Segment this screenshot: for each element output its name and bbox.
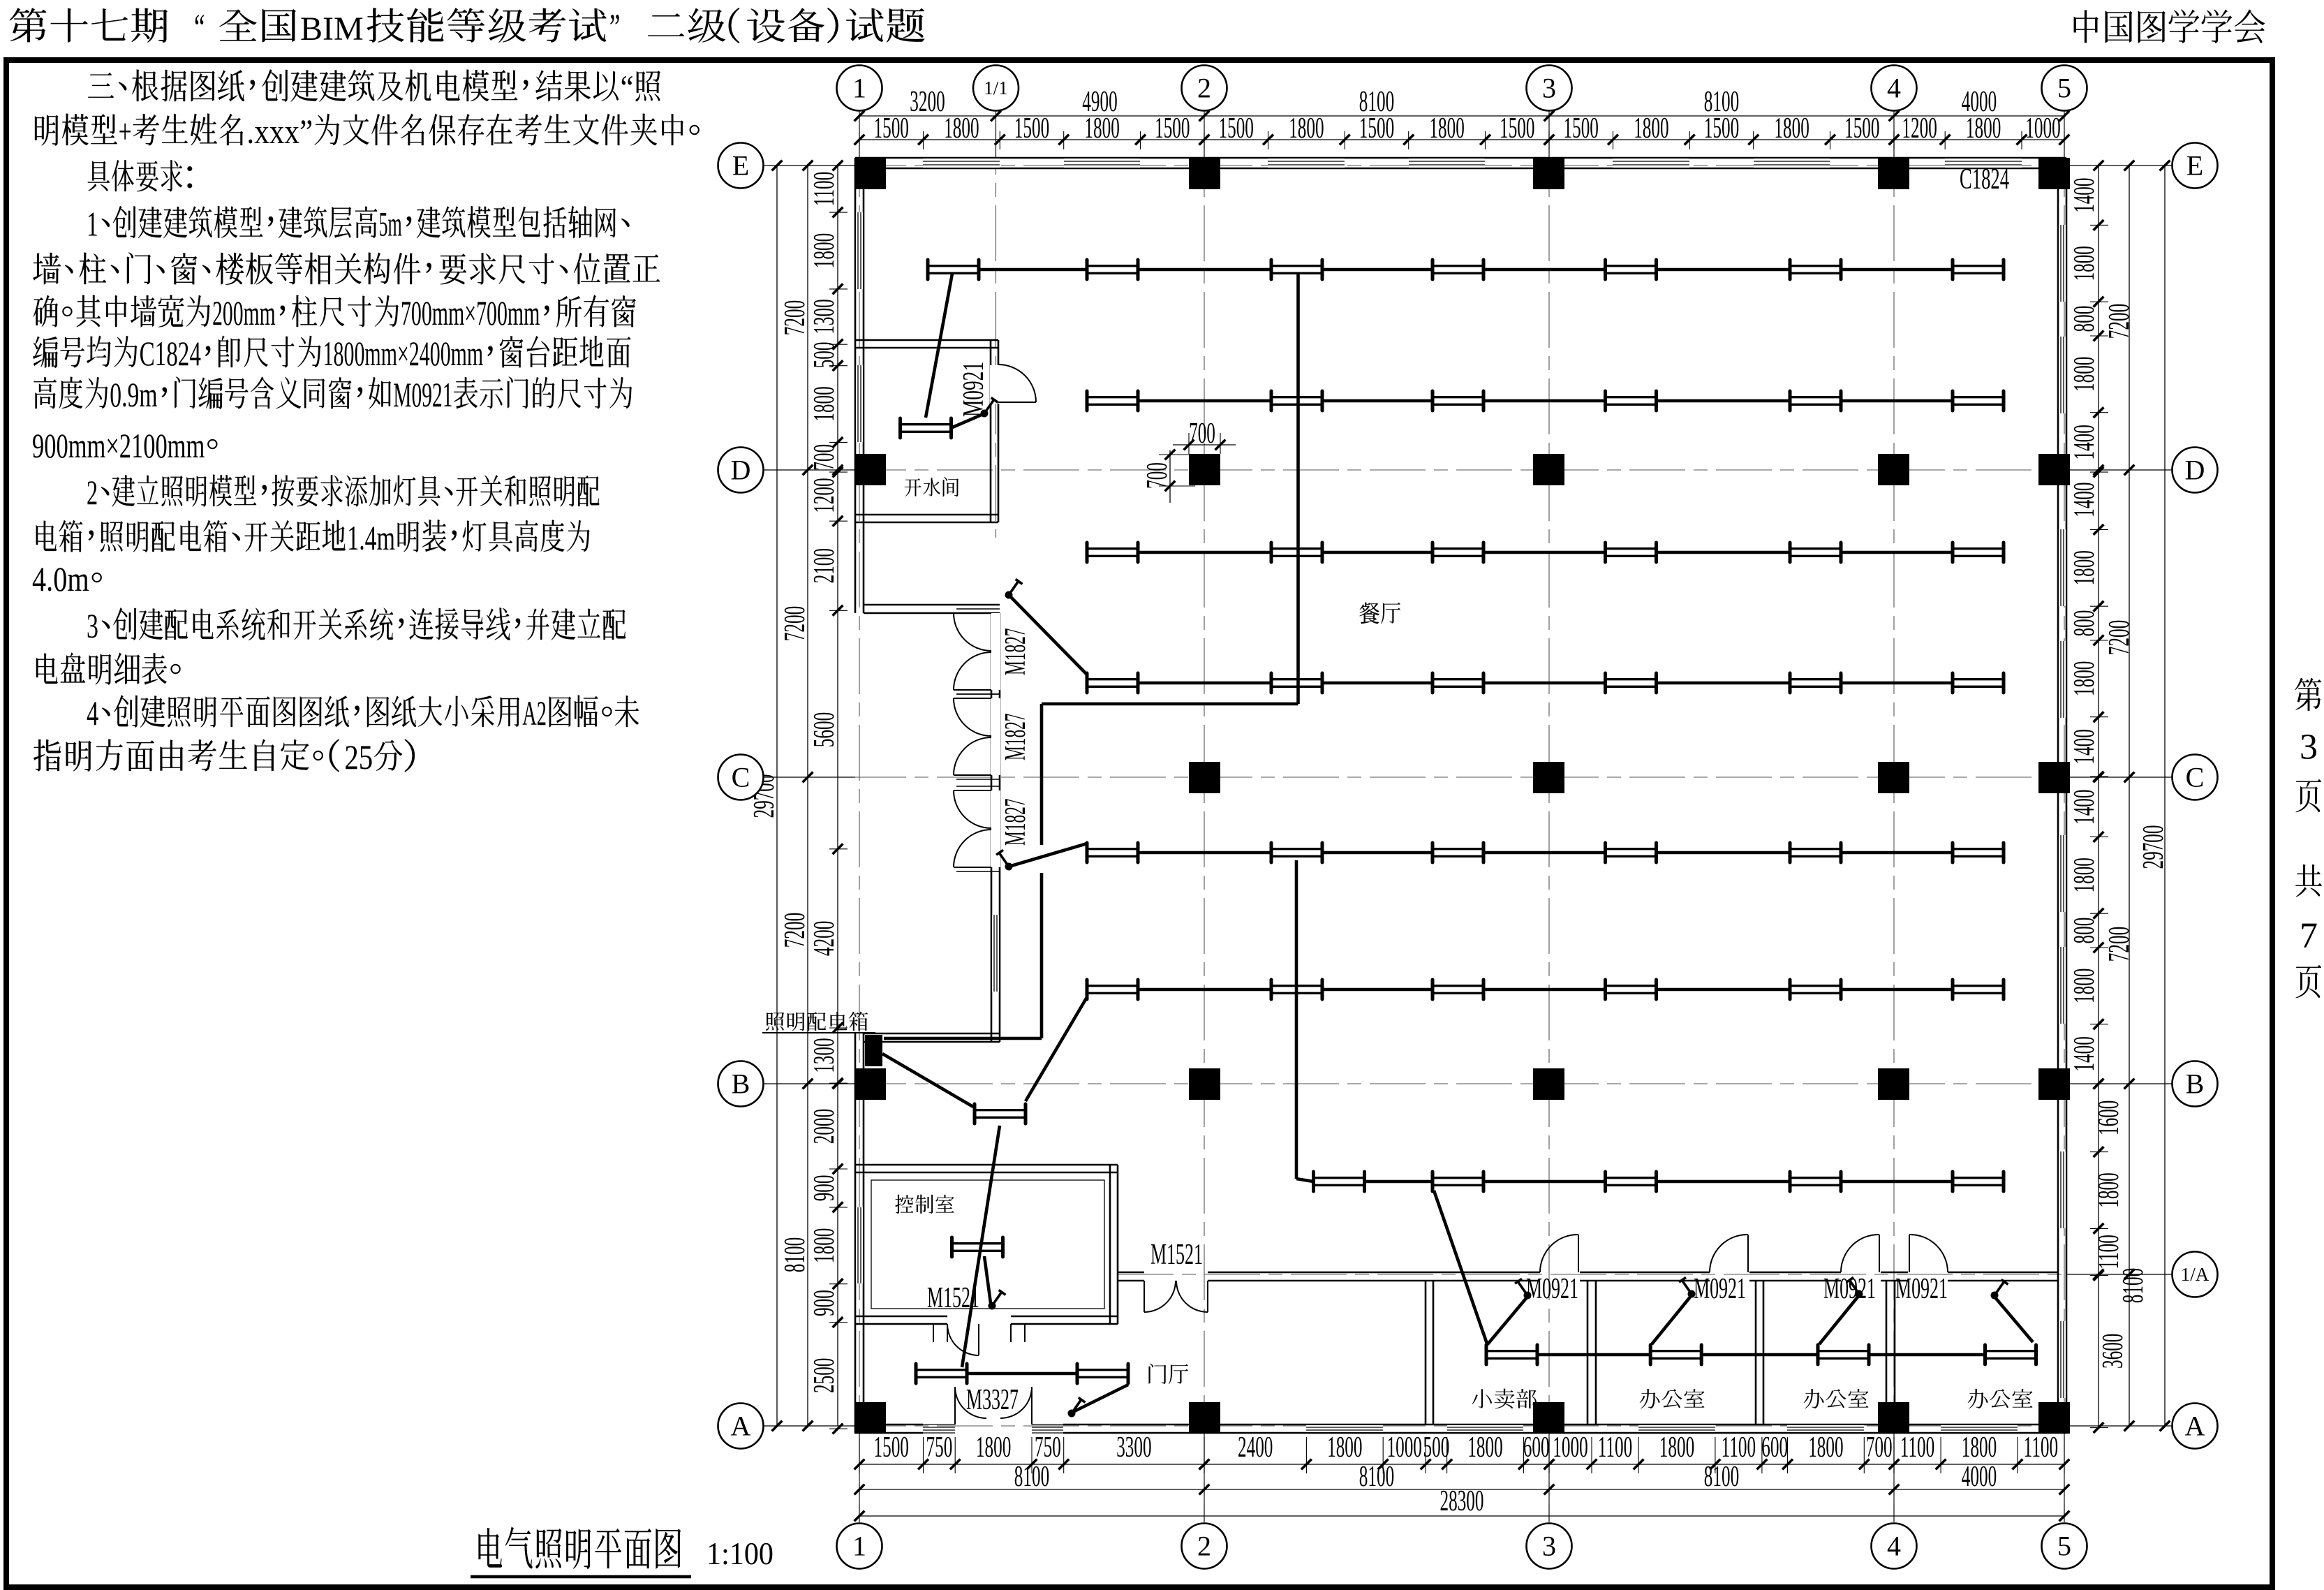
svg-text:2100: 2100 bbox=[808, 548, 841, 583]
svg-text:M3327: M3327 bbox=[966, 1384, 1019, 1416]
svg-text:1500: 1500 bbox=[874, 112, 909, 145]
svg-text:”: ” bbox=[609, 6, 620, 48]
svg-text:7: 7 bbox=[2300, 916, 2318, 956]
svg-text:2000: 2000 bbox=[808, 1109, 841, 1144]
svg-text:1800: 1800 bbox=[976, 1431, 1011, 1464]
svg-text:5600: 5600 bbox=[808, 712, 841, 747]
svg-text:1800: 1800 bbox=[2068, 246, 2101, 281]
svg-text:1100: 1100 bbox=[1598, 1431, 1632, 1464]
svg-text:1800: 1800 bbox=[1962, 1431, 1997, 1464]
svg-text:M0921: M0921 bbox=[1694, 1273, 1746, 1305]
svg-text:1000: 1000 bbox=[1387, 1431, 1422, 1464]
svg-text:1800: 1800 bbox=[944, 112, 979, 145]
svg-text:1500: 1500 bbox=[874, 1431, 909, 1464]
svg-text:8100: 8100 bbox=[1704, 1461, 1739, 1493]
svg-text:1200: 1200 bbox=[1902, 112, 1937, 145]
svg-text:C1824: C1824 bbox=[1960, 163, 2009, 196]
svg-text:C: C bbox=[732, 762, 750, 793]
svg-text:2: 2 bbox=[1197, 1531, 1211, 1562]
svg-text:7200: 7200 bbox=[779, 300, 811, 335]
svg-text:900: 900 bbox=[808, 1175, 841, 1202]
svg-text:M0921: M0921 bbox=[1823, 1273, 1876, 1305]
svg-text:4000: 4000 bbox=[1962, 1461, 1997, 1493]
svg-text:1: 1 bbox=[852, 73, 866, 104]
svg-text:1500: 1500 bbox=[1704, 112, 1739, 145]
svg-text:4: 4 bbox=[1887, 1531, 1901, 1562]
svg-text:M0921: M0921 bbox=[1526, 1273, 1578, 1305]
svg-text:4: 4 bbox=[87, 693, 98, 733]
svg-text:.xxx”: .xxx” bbox=[246, 112, 313, 151]
svg-text:1000: 1000 bbox=[2025, 112, 2060, 145]
svg-text:C1824: C1824 bbox=[140, 334, 201, 373]
svg-text:1800: 1800 bbox=[2068, 357, 2101, 392]
svg-text:750: 750 bbox=[926, 1431, 953, 1464]
svg-text:1: 1 bbox=[87, 205, 98, 244]
svg-text:2: 2 bbox=[1197, 73, 1211, 104]
svg-text:1200: 1200 bbox=[808, 478, 841, 513]
svg-text:1800: 1800 bbox=[1467, 1431, 1502, 1464]
svg-text:1800: 1800 bbox=[1634, 112, 1668, 145]
svg-text:3200: 3200 bbox=[910, 86, 945, 118]
svg-text:900mm×2100mm: 900mm×2100mm bbox=[32, 426, 205, 465]
svg-text:700: 700 bbox=[1141, 462, 1174, 489]
svg-text:1100: 1100 bbox=[2024, 1431, 2058, 1464]
svg-text:1300: 1300 bbox=[808, 299, 841, 334]
svg-text:M1827: M1827 bbox=[1000, 714, 1032, 761]
svg-text:5: 5 bbox=[2057, 1531, 2071, 1562]
svg-text:3: 3 bbox=[87, 606, 98, 645]
svg-text:“: “ bbox=[194, 6, 205, 48]
svg-text:500: 500 bbox=[1423, 1431, 1450, 1464]
svg-text:1500: 1500 bbox=[1359, 112, 1394, 145]
svg-text:1400: 1400 bbox=[2068, 729, 2101, 764]
svg-text:C: C bbox=[2186, 762, 2205, 793]
svg-text:3300: 3300 bbox=[1116, 1431, 1151, 1464]
svg-text:1/1: 1/1 bbox=[984, 78, 1008, 98]
svg-text:700mm×700mm: 700mm×700mm bbox=[401, 293, 540, 332]
svg-text:700: 700 bbox=[808, 444, 841, 471]
svg-text:4200: 4200 bbox=[808, 921, 841, 956]
svg-text:800: 800 bbox=[2068, 306, 2101, 332]
svg-text:1300: 1300 bbox=[808, 1038, 841, 1073]
svg-text:M1827: M1827 bbox=[1000, 628, 1032, 676]
svg-text:2: 2 bbox=[87, 473, 98, 512]
svg-text:29700: 29700 bbox=[2138, 825, 2170, 869]
svg-text:3: 3 bbox=[1542, 73, 1556, 104]
svg-text:4.0m: 4.0m bbox=[32, 559, 89, 598]
svg-text:1400: 1400 bbox=[2068, 1036, 2101, 1071]
svg-text:7200: 7200 bbox=[2103, 927, 2136, 962]
svg-text:2500: 2500 bbox=[808, 1358, 841, 1393]
svg-text:700: 700 bbox=[1189, 418, 1215, 450]
svg-text:1800: 1800 bbox=[808, 386, 841, 421]
svg-text:1000: 1000 bbox=[1553, 1431, 1587, 1464]
svg-text:1800: 1800 bbox=[2068, 857, 2101, 892]
svg-text:1/A: 1/A bbox=[2181, 1264, 2210, 1285]
svg-text:0.9m: 0.9m bbox=[110, 375, 157, 414]
svg-text:900: 900 bbox=[808, 1290, 841, 1316]
svg-text:3600: 3600 bbox=[2097, 1334, 2129, 1369]
svg-text:1: 1 bbox=[852, 1531, 866, 1562]
svg-text:1400: 1400 bbox=[2068, 790, 2101, 825]
svg-text:1800: 1800 bbox=[2068, 550, 2101, 585]
svg-text:1800: 1800 bbox=[1659, 1431, 1694, 1464]
svg-text:1500: 1500 bbox=[1500, 112, 1534, 145]
svg-text:1800: 1800 bbox=[1966, 112, 2001, 145]
svg-text:600: 600 bbox=[1761, 1431, 1788, 1464]
svg-text:600: 600 bbox=[1523, 1431, 1550, 1464]
svg-text:1500: 1500 bbox=[1219, 112, 1254, 145]
svg-text:A: A bbox=[731, 1411, 751, 1442]
svg-text:25: 25 bbox=[344, 737, 373, 776]
svg-text:8100: 8100 bbox=[1359, 1461, 1394, 1493]
svg-text:800: 800 bbox=[2068, 918, 2101, 944]
svg-text:4: 4 bbox=[1887, 73, 1901, 104]
svg-text:1500: 1500 bbox=[1155, 112, 1190, 145]
svg-text:M0921: M0921 bbox=[958, 362, 990, 417]
svg-text:BIM: BIM bbox=[300, 10, 364, 47]
svg-text:1400: 1400 bbox=[2068, 483, 2101, 517]
svg-text:1100: 1100 bbox=[1722, 1431, 1756, 1464]
svg-text:B: B bbox=[732, 1068, 750, 1100]
svg-text:7200: 7200 bbox=[779, 913, 811, 948]
svg-text:700: 700 bbox=[1866, 1431, 1893, 1464]
svg-text:5: 5 bbox=[2057, 73, 2071, 104]
svg-text:M1521: M1521 bbox=[1150, 1239, 1203, 1271]
svg-text:1800mm×2400mm: 1800mm×2400mm bbox=[323, 334, 484, 373]
svg-text:“: “ bbox=[621, 68, 634, 107]
svg-text:8100: 8100 bbox=[779, 1237, 811, 1272]
svg-text:1800: 1800 bbox=[808, 1228, 841, 1263]
svg-text:1600: 1600 bbox=[2093, 1101, 2125, 1135]
svg-text:200mm: 200mm bbox=[212, 293, 276, 332]
svg-text:1.4m: 1.4m bbox=[347, 518, 395, 557]
svg-text:E: E bbox=[732, 150, 749, 182]
svg-text:+: + bbox=[119, 112, 132, 151]
svg-text:1500: 1500 bbox=[1844, 112, 1879, 145]
svg-text:1800: 1800 bbox=[808, 233, 841, 268]
svg-text:3: 3 bbox=[2300, 728, 2318, 767]
svg-text:800: 800 bbox=[2068, 610, 2101, 637]
svg-text:1800: 1800 bbox=[1774, 112, 1809, 145]
svg-text:1800: 1800 bbox=[2068, 969, 2101, 1003]
svg-text:1500: 1500 bbox=[1564, 112, 1599, 145]
svg-text:M1521: M1521 bbox=[927, 1282, 979, 1314]
svg-text:A: A bbox=[2185, 1411, 2205, 1442]
svg-text:1:100: 1:100 bbox=[706, 1536, 774, 1571]
svg-text:1800: 1800 bbox=[2068, 661, 2101, 696]
svg-text:1800: 1800 bbox=[1808, 1431, 1843, 1464]
svg-text:D: D bbox=[2185, 455, 2205, 486]
svg-text:E: E bbox=[2186, 150, 2203, 182]
svg-text:M1827: M1827 bbox=[1000, 799, 1032, 846]
svg-text:1800: 1800 bbox=[1289, 112, 1324, 145]
svg-text:D: D bbox=[731, 455, 751, 486]
svg-text:8100: 8100 bbox=[2117, 1268, 2149, 1303]
svg-text:1100: 1100 bbox=[2093, 1235, 2125, 1269]
svg-text:7200: 7200 bbox=[2103, 620, 2136, 655]
svg-text:A2: A2 bbox=[522, 693, 547, 733]
svg-text:1100: 1100 bbox=[1900, 1431, 1934, 1464]
svg-text:5m: 5m bbox=[379, 205, 402, 244]
svg-text:1800: 1800 bbox=[1084, 112, 1119, 145]
svg-text:M0921: M0921 bbox=[393, 375, 452, 414]
svg-text:1800: 1800 bbox=[1327, 1431, 1362, 1464]
svg-text:B: B bbox=[2186, 1068, 2205, 1100]
svg-text:28300: 28300 bbox=[1440, 1485, 1484, 1517]
svg-text:750: 750 bbox=[1035, 1431, 1061, 1464]
svg-text:M0921: M0921 bbox=[1895, 1273, 1948, 1305]
svg-text:1400: 1400 bbox=[2068, 425, 2101, 459]
svg-text:1800: 1800 bbox=[2093, 1172, 2125, 1207]
svg-text:7200: 7200 bbox=[779, 606, 811, 641]
svg-text:7200: 7200 bbox=[2103, 304, 2136, 339]
svg-text:3: 3 bbox=[1542, 1531, 1556, 1562]
svg-text:1100: 1100 bbox=[808, 172, 841, 206]
svg-text:1400: 1400 bbox=[2068, 178, 2101, 213]
svg-text:2400: 2400 bbox=[1238, 1431, 1273, 1464]
svg-text:1800: 1800 bbox=[1429, 112, 1464, 145]
svg-text:1500: 1500 bbox=[1014, 112, 1049, 145]
